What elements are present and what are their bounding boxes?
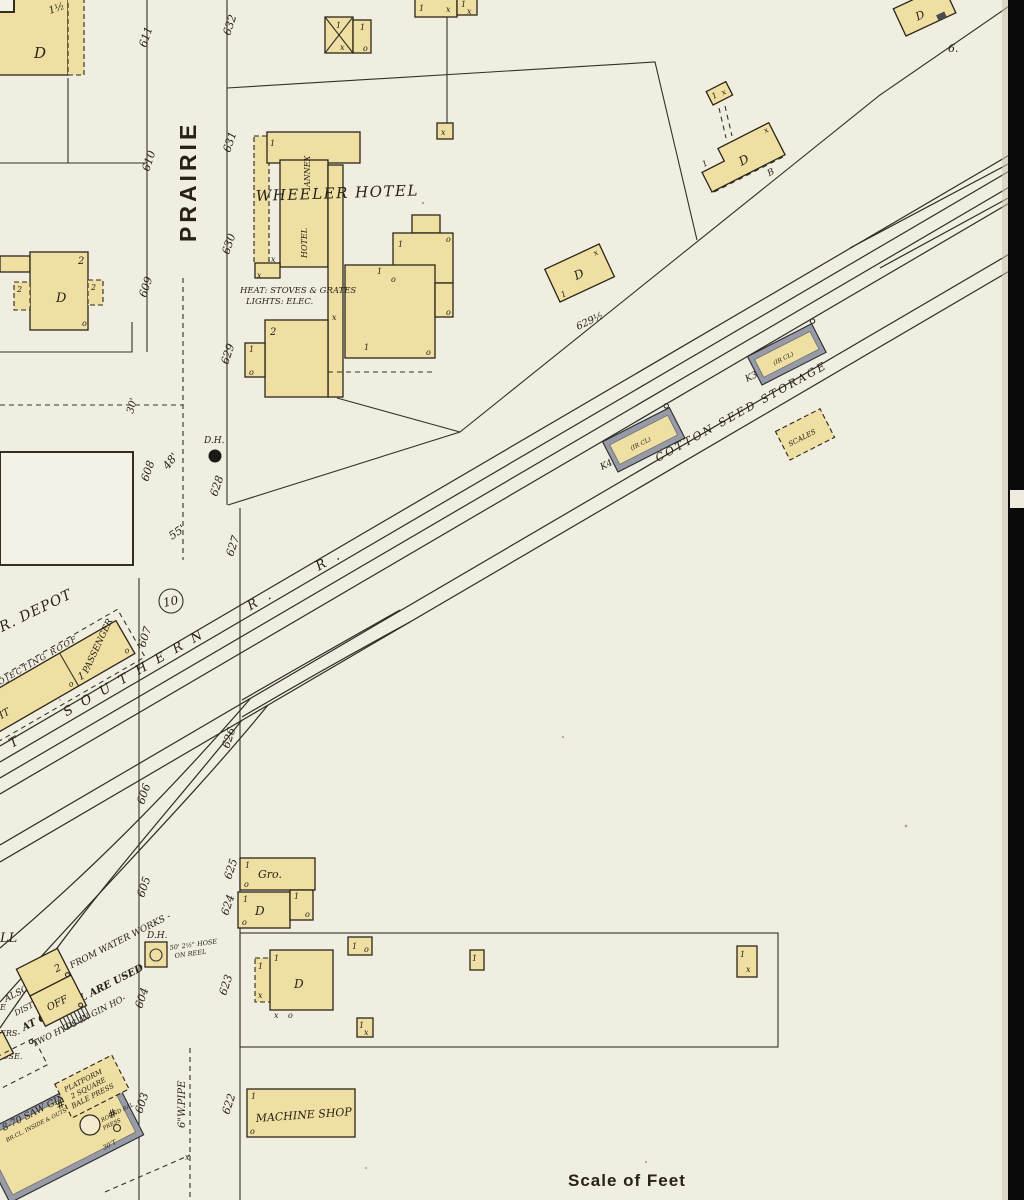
speck bbox=[645, 1161, 647, 1163]
grocery-label: Gro. bbox=[258, 868, 282, 881]
mark-o: o bbox=[305, 910, 310, 919]
mark-o: o bbox=[446, 235, 451, 244]
story-count: 2 bbox=[77, 256, 84, 267]
mark-x: x bbox=[257, 271, 262, 280]
hotel-south-wing bbox=[245, 343, 265, 377]
dwelling-symbol: D bbox=[33, 44, 46, 62]
wheeler-hotel: WHEELER HOTEL ANNEX HOTEL HEAT: STOVES &… bbox=[239, 132, 453, 397]
story-count: 1 bbox=[274, 954, 279, 963]
story-count: 1 bbox=[461, 0, 466, 9]
railroad-depot: PROJECTING ROOF PASSENGER GHT 1 o o R. D… bbox=[0, 586, 145, 745]
cotton-seed-storage: (IR CL) K4 (IR CL) K3 SCALES COTTON SEED… bbox=[598, 318, 835, 473]
distance-55: 55' bbox=[166, 522, 187, 542]
story-count: 1 bbox=[398, 240, 403, 249]
top-left-block: D 1½ D 2 2 2 o bbox=[0, 0, 133, 565]
siding-track bbox=[880, 196, 1012, 268]
map-canvas: x D 1½ D 2 2 2 o PRAIRIE 611 610 609 608… bbox=[0, 0, 1024, 1200]
mark-x: x bbox=[446, 5, 451, 14]
mill-name-partial: LL bbox=[0, 931, 17, 946]
address-number: 603 bbox=[132, 1091, 151, 1115]
hose-house bbox=[145, 942, 167, 967]
mark-x: x bbox=[340, 43, 345, 52]
address-number: 604 bbox=[132, 986, 151, 1010]
story-count: 1 bbox=[472, 954, 477, 963]
track-line bbox=[0, 242, 1024, 845]
story-count: 1 bbox=[360, 23, 365, 32]
mark-x: x bbox=[746, 965, 751, 974]
address-number: 611 bbox=[136, 25, 155, 49]
dwelling-symbol: D bbox=[55, 291, 67, 306]
mark-x: x bbox=[271, 255, 276, 264]
switch-track bbox=[242, 610, 400, 700]
dwelling-629half: D 1 x 629½ bbox=[545, 244, 615, 333]
railroad-tracks bbox=[0, 143, 1024, 1028]
mark-o: o bbox=[249, 368, 254, 377]
page-edge-black bbox=[1008, 0, 1024, 1200]
pipe-junction-x: x bbox=[185, 1153, 190, 1162]
story-count: 1 bbox=[270, 139, 275, 148]
street-and-lot-lines bbox=[0, 0, 1018, 1200]
scale-of-feet-label: Scale of Feet bbox=[568, 1171, 686, 1190]
track-line bbox=[0, 159, 1024, 762]
street-name: PRAIRIE bbox=[175, 121, 201, 242]
track-line bbox=[0, 175, 1024, 778]
building-section bbox=[0, 0, 14, 12]
address-number: 631 bbox=[220, 130, 239, 154]
address-number: 605 bbox=[134, 875, 153, 899]
story-count: 2 bbox=[269, 327, 276, 338]
address-number: 632 bbox=[220, 13, 239, 37]
heat-note: HEAT: STOVES & GRATES bbox=[239, 286, 356, 296]
ne-dwelling-group: 1 x D x 1 B bbox=[696, 82, 792, 206]
page-edge bbox=[1002, 0, 1024, 1200]
edge-text-partial: E bbox=[0, 1003, 6, 1012]
grocery-block: Gro. 1 o D 1 o 1 o 1 o 1 1 x D 1 x 1 x o… bbox=[238, 858, 757, 1037]
dwelling-symbol: D bbox=[293, 977, 304, 991]
story-count: 1 bbox=[377, 267, 382, 276]
mark-o: o bbox=[242, 918, 247, 927]
double-hydrant-label: D.H. bbox=[203, 436, 225, 446]
building-wing bbox=[0, 256, 30, 272]
address-number: 608 bbox=[138, 459, 157, 483]
depot-title: R. DEPOT bbox=[0, 586, 75, 636]
switch-track bbox=[242, 622, 410, 717]
address-number: 629 bbox=[218, 342, 237, 366]
speck bbox=[562, 736, 564, 738]
story-count: 1 bbox=[740, 950, 745, 959]
story-count: 1 bbox=[352, 942, 357, 951]
open-lot-building bbox=[0, 452, 133, 565]
story-count: 1 bbox=[243, 895, 248, 904]
lights-note: LIGHTS: ELEC. bbox=[245, 297, 313, 307]
distance-30: 30' bbox=[125, 397, 140, 415]
lot-line bbox=[337, 398, 460, 432]
speck bbox=[905, 825, 908, 828]
water-pipe bbox=[105, 1155, 190, 1192]
mark-o: o bbox=[244, 880, 249, 889]
mark-x: x bbox=[441, 128, 446, 137]
mark-o: o bbox=[288, 1011, 293, 1020]
fence-connector bbox=[719, 106, 732, 138]
address-number: 626 bbox=[219, 726, 238, 750]
top-small-buildings: 1 x 1 o 1 x 1 x x bbox=[325, 0, 477, 139]
story-count: 1 bbox=[258, 962, 263, 971]
rear-building-large bbox=[345, 265, 435, 358]
top-right-dwelling: D x 6. bbox=[893, 0, 958, 55]
hotel-annex-building bbox=[267, 132, 360, 163]
porch bbox=[68, 0, 84, 75]
address-number: 625 bbox=[221, 857, 240, 881]
story-count: 1 bbox=[701, 158, 710, 168]
speck bbox=[365, 1167, 367, 1169]
bale-press-circle bbox=[80, 1115, 100, 1135]
mark-o: o bbox=[364, 945, 369, 954]
address-number: 624 bbox=[218, 893, 237, 917]
hose-dh-label: D.H. bbox=[146, 931, 168, 941]
address-number: 610 bbox=[139, 149, 158, 173]
mark-x: x bbox=[332, 313, 337, 322]
siding-track bbox=[850, 162, 1012, 248]
story-count: 2 bbox=[90, 283, 96, 292]
rear-building bbox=[412, 215, 440, 233]
story-count: 1 bbox=[336, 21, 341, 30]
mark-o: o bbox=[426, 348, 431, 357]
mark-o: o bbox=[446, 308, 451, 317]
address-number: 609 bbox=[136, 275, 155, 299]
track-line bbox=[0, 259, 1024, 862]
story-count: 1 bbox=[245, 861, 250, 870]
sanborn-map-sheet: x D 1½ D 2 2 2 o PRAIRIE 611 610 609 608… bbox=[0, 0, 1024, 1200]
water-pipe-label: 6"W.PIPE bbox=[177, 1080, 188, 1128]
corner-label: 6. bbox=[948, 42, 959, 55]
address-label: 629½ bbox=[575, 311, 606, 333]
story-count: 1 bbox=[249, 345, 254, 354]
story-count: 1 bbox=[294, 892, 299, 901]
address-number: 623 bbox=[216, 973, 235, 997]
double-hydrant-dot bbox=[209, 450, 222, 463]
story-count: 1 bbox=[364, 343, 369, 352]
block-number: 10 bbox=[162, 593, 180, 610]
speck bbox=[59, 699, 61, 701]
mark-o: o bbox=[391, 275, 396, 284]
barn-class-label: B bbox=[765, 167, 777, 180]
story-count: 1 bbox=[251, 1092, 256, 1101]
hotel-annex-label: ANNEX bbox=[303, 155, 312, 188]
speck bbox=[422, 202, 424, 204]
story-count: 1 bbox=[419, 4, 424, 13]
page-edge-notch bbox=[1010, 490, 1024, 508]
address-number: 630 bbox=[219, 232, 238, 256]
story-count: 2 bbox=[16, 285, 22, 294]
hotel-wing-label: HOTEL bbox=[300, 228, 309, 259]
address-number: 622 bbox=[219, 1092, 238, 1116]
machine-shop-group: MACHINE SHOP 1 o bbox=[247, 1089, 355, 1137]
mark-o: o bbox=[250, 1127, 255, 1136]
mark-x: x bbox=[364, 1028, 369, 1037]
mark-x: x bbox=[258, 991, 263, 1000]
address-number: 606 bbox=[134, 782, 153, 806]
distance-48: 48' bbox=[160, 450, 181, 472]
mark-o: o bbox=[363, 44, 368, 53]
mark-x: x bbox=[274, 1011, 279, 1020]
outbuilding-o: o bbox=[82, 319, 87, 328]
dwelling-symbol: D bbox=[254, 904, 265, 918]
mark-x: x bbox=[467, 7, 472, 16]
address-number: 628 bbox=[207, 474, 226, 498]
